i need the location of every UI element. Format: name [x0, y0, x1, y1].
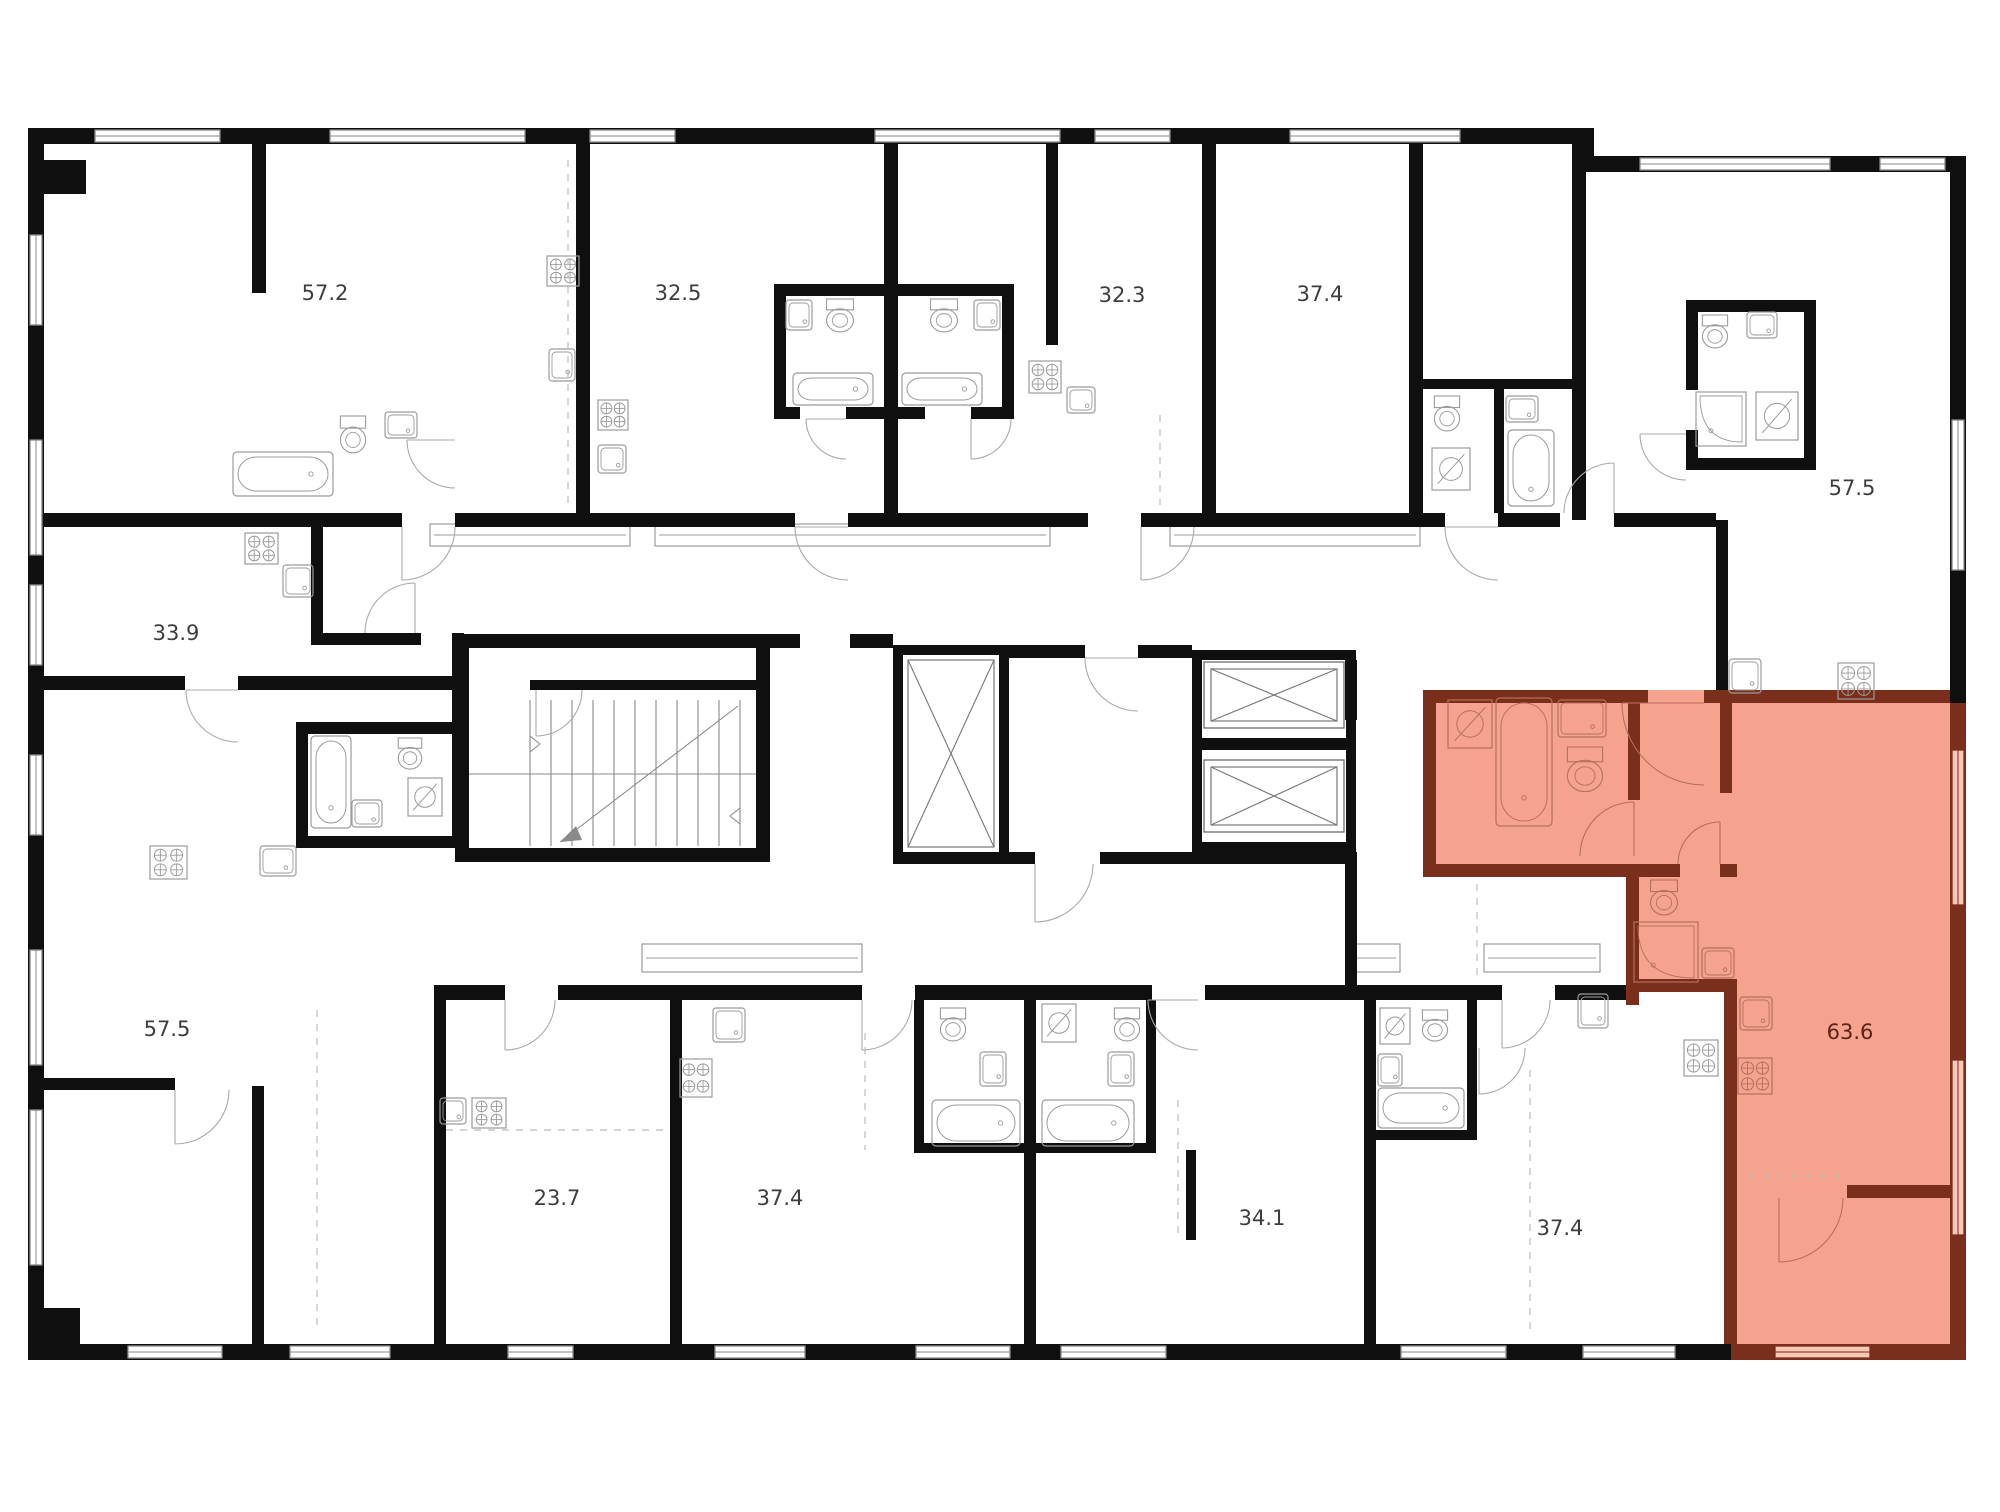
room-area-label: 33.9: [153, 621, 200, 645]
room-area-label: 37.4: [1537, 1216, 1584, 1240]
room-area-label: 23.7: [534, 1186, 581, 1210]
room-area-label: 57.5: [1829, 476, 1876, 500]
room-area-label: 37.4: [757, 1186, 804, 1210]
room-area-label: 57.5: [144, 1017, 191, 1041]
selected-room-area-label: 63.6: [1827, 1020, 1874, 1044]
room-area-label: 32.5: [655, 281, 702, 305]
room-area-label: 57.2: [302, 281, 349, 305]
room-area-label: 32.3: [1099, 283, 1146, 307]
room-area-label: 37.4: [1297, 282, 1344, 306]
room-area-label: 34.1: [1239, 1206, 1286, 1230]
floorplan-canvas: 57.232.532.337.457.533.957.523.737.434.1…: [0, 0, 2000, 1512]
floor-plan: 57.232.532.337.457.533.957.523.737.434.1…: [0, 0, 2000, 1512]
